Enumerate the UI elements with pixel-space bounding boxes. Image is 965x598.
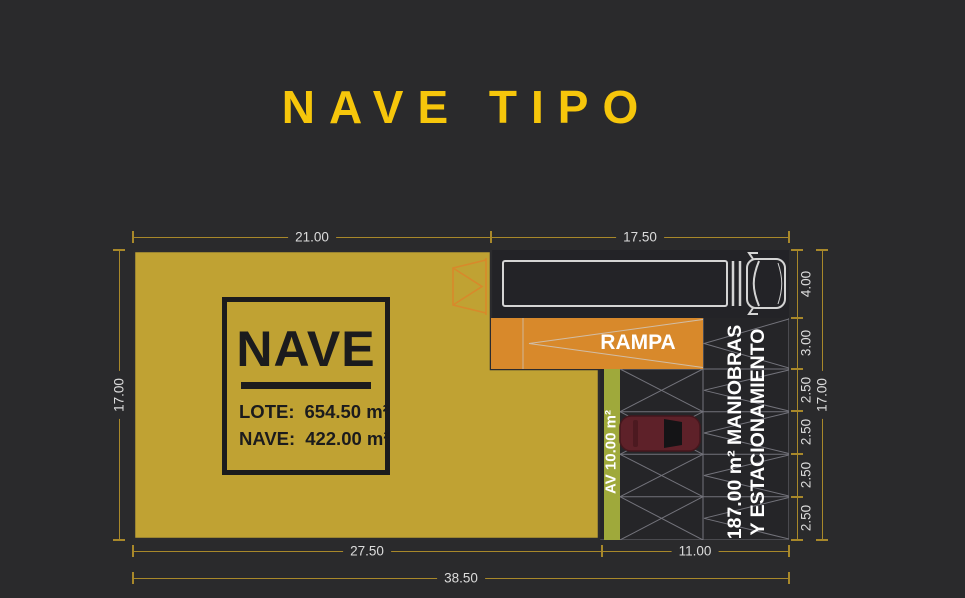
nave-label: NAVE: <box>239 428 295 450</box>
dim-label-bottom-38-50: 38.50 <box>437 571 485 586</box>
dim-tick <box>791 539 803 541</box>
car-icon <box>620 416 700 451</box>
lote-value: 654.50 m² <box>305 401 389 423</box>
dim-tick <box>791 453 803 455</box>
dim-label-right-250d: 2.50 <box>799 505 814 531</box>
dim-tick <box>816 249 828 251</box>
dim-tick <box>490 231 492 243</box>
dim-label-bottom-11: 11.00 <box>672 544 719 559</box>
dim-tick <box>788 231 790 243</box>
maniobras-zone-label: 187.00 m² MANIOBRAS Y ESTACIONAMIENTO <box>724 325 770 540</box>
dim-label-top-21: 21.00 <box>288 230 336 245</box>
dim-tick <box>601 545 603 557</box>
dim-tick <box>113 539 125 541</box>
dim-label-top-17-50: 17.50 <box>616 230 664 245</box>
av-zone-label: AV 10.00 m² <box>603 410 620 494</box>
floor-plan: NAVE LOTE: 654.50 m² NAVE: 422.00 m² <box>133 250 789 540</box>
dim-label-right-250a: 2.50 <box>799 377 814 403</box>
dim-tick <box>791 496 803 498</box>
dim-tick <box>132 545 134 557</box>
dim-tick <box>791 317 803 319</box>
dim-tick <box>788 572 790 584</box>
dim-label-left-17: 17.00 <box>112 371 127 419</box>
dim-label-right-3: 3.00 <box>799 330 814 356</box>
dim-tick <box>788 545 790 557</box>
dim-label-right-4: 4.00 <box>799 271 814 297</box>
rampa-zone-label: RAMPA <box>600 331 675 355</box>
lote-area-row: LOTE: 654.50 m² <box>239 401 390 423</box>
maniobras-line2: Y ESTACIONAMIENTO <box>747 325 770 540</box>
maniobras-line1: 187.00 m² MANIOBRAS <box>724 325 747 540</box>
page-title: NAVE TIPO <box>282 80 653 134</box>
dim-label-bottom-27-50: 27.50 <box>343 544 391 559</box>
dim-tick <box>791 368 803 370</box>
dim-label-right-250b: 2.50 <box>799 419 814 445</box>
dim-tick <box>132 231 134 243</box>
dim-label-right-17: 17.00 <box>815 371 830 419</box>
dim-tick <box>816 539 828 541</box>
lote-label: LOTE: <box>239 401 295 423</box>
nave-tipo-plan-page: NAVE TIPO <box>0 0 965 598</box>
dim-tick <box>113 249 125 251</box>
nave-area-row: NAVE: 422.00 m² <box>239 428 390 450</box>
dim-tick <box>791 249 803 251</box>
nave-box-title: NAVE <box>236 323 375 375</box>
nave-info-box: NAVE LOTE: 654.50 m² NAVE: 422.00 m² <box>222 297 390 475</box>
dim-tick <box>791 410 803 412</box>
dim-tick <box>132 572 134 584</box>
dim-label-right-250c: 2.50 <box>799 462 814 488</box>
nave-value: 422.00 m² <box>305 428 389 450</box>
nave-box-divider <box>241 382 371 389</box>
